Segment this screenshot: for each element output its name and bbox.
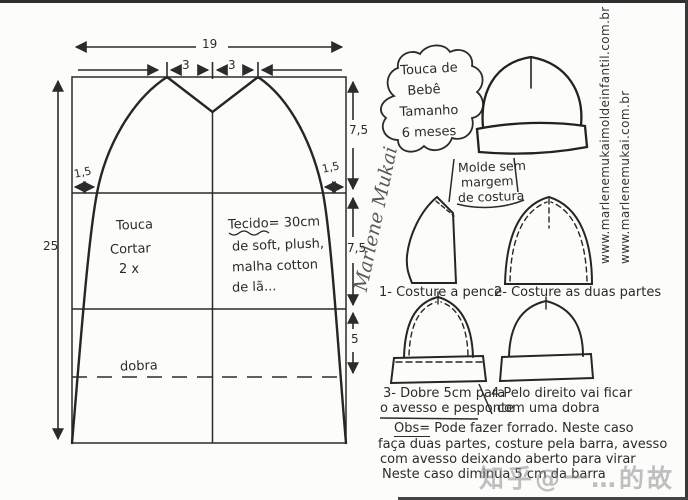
fold-label: dobra — [120, 359, 158, 374]
fabric-note-line2: de soft, plush, — [232, 237, 324, 254]
dim-width-19: 19 — [202, 38, 217, 51]
step2-caption: 2- Costure as duas partes — [494, 286, 661, 300]
dim-notch-right-3: 3 — [228, 59, 236, 72]
zhihu-watermark: 知乎@一…的故事 — [479, 459, 688, 500]
step2-dome-drawing — [505, 197, 592, 284]
piece-name-label: Touca — [116, 218, 154, 233]
step4-hat-drawing — [500, 297, 593, 381]
dim-right-low-5: 5 — [351, 333, 359, 346]
step3-caption-line2: o avesso e pesponte — [380, 402, 514, 416]
cut-qty-label: 2 x — [119, 263, 139, 277]
website-url-short: www.marlenemukai.com.br — [618, 90, 632, 264]
dim-right-top-75: 7,5 — [349, 124, 368, 137]
website-url-long: www.marlenemukaimoldeinfantil.com.br — [598, 6, 612, 264]
obs-line1: Obs= Pode fazer forrado. Neste caso — [394, 422, 634, 436]
step1-caption: 1- Costure a pence — [379, 286, 502, 300]
fabric-note-line4: de lã... — [232, 280, 277, 295]
note-line2: margem — [461, 174, 514, 189]
step3-hat-drawing — [391, 292, 486, 383]
dim-height-25: 25 — [43, 240, 58, 253]
scan-border-top — [0, 0, 688, 3]
note-line1: Molde sem — [458, 159, 526, 174]
note-line3: de costura — [458, 189, 525, 204]
obs-line2: faça duas partes, costure pela barra, av… — [378, 438, 667, 452]
cut-label: Cortar — [110, 242, 151, 257]
scanned-sewing-pattern-page: 19 3 3 7,5 7,5 5 25 1,5 1,5 Touca Cortar… — [0, 0, 688, 500]
step4-caption-line2: com uma dobra — [497, 402, 600, 416]
fabric-note-line1: Tecido= 30cm — [228, 215, 320, 232]
fabric-note-line3: malha cotton — [232, 259, 319, 276]
step1-piece-drawing — [407, 197, 456, 283]
dim-notch-left-3: 3 — [182, 59, 190, 72]
step3-caption-line1: 3- Dobre 5cm para — [383, 387, 505, 401]
finished-hat-drawing — [477, 57, 587, 154]
obs-prefix: Obs= — [394, 421, 430, 437]
step4-caption-line1: 4.Pelo direito vai ficar — [491, 387, 632, 401]
obs-line1-rest: Pode fazer forrado. Neste caso — [430, 421, 633, 436]
